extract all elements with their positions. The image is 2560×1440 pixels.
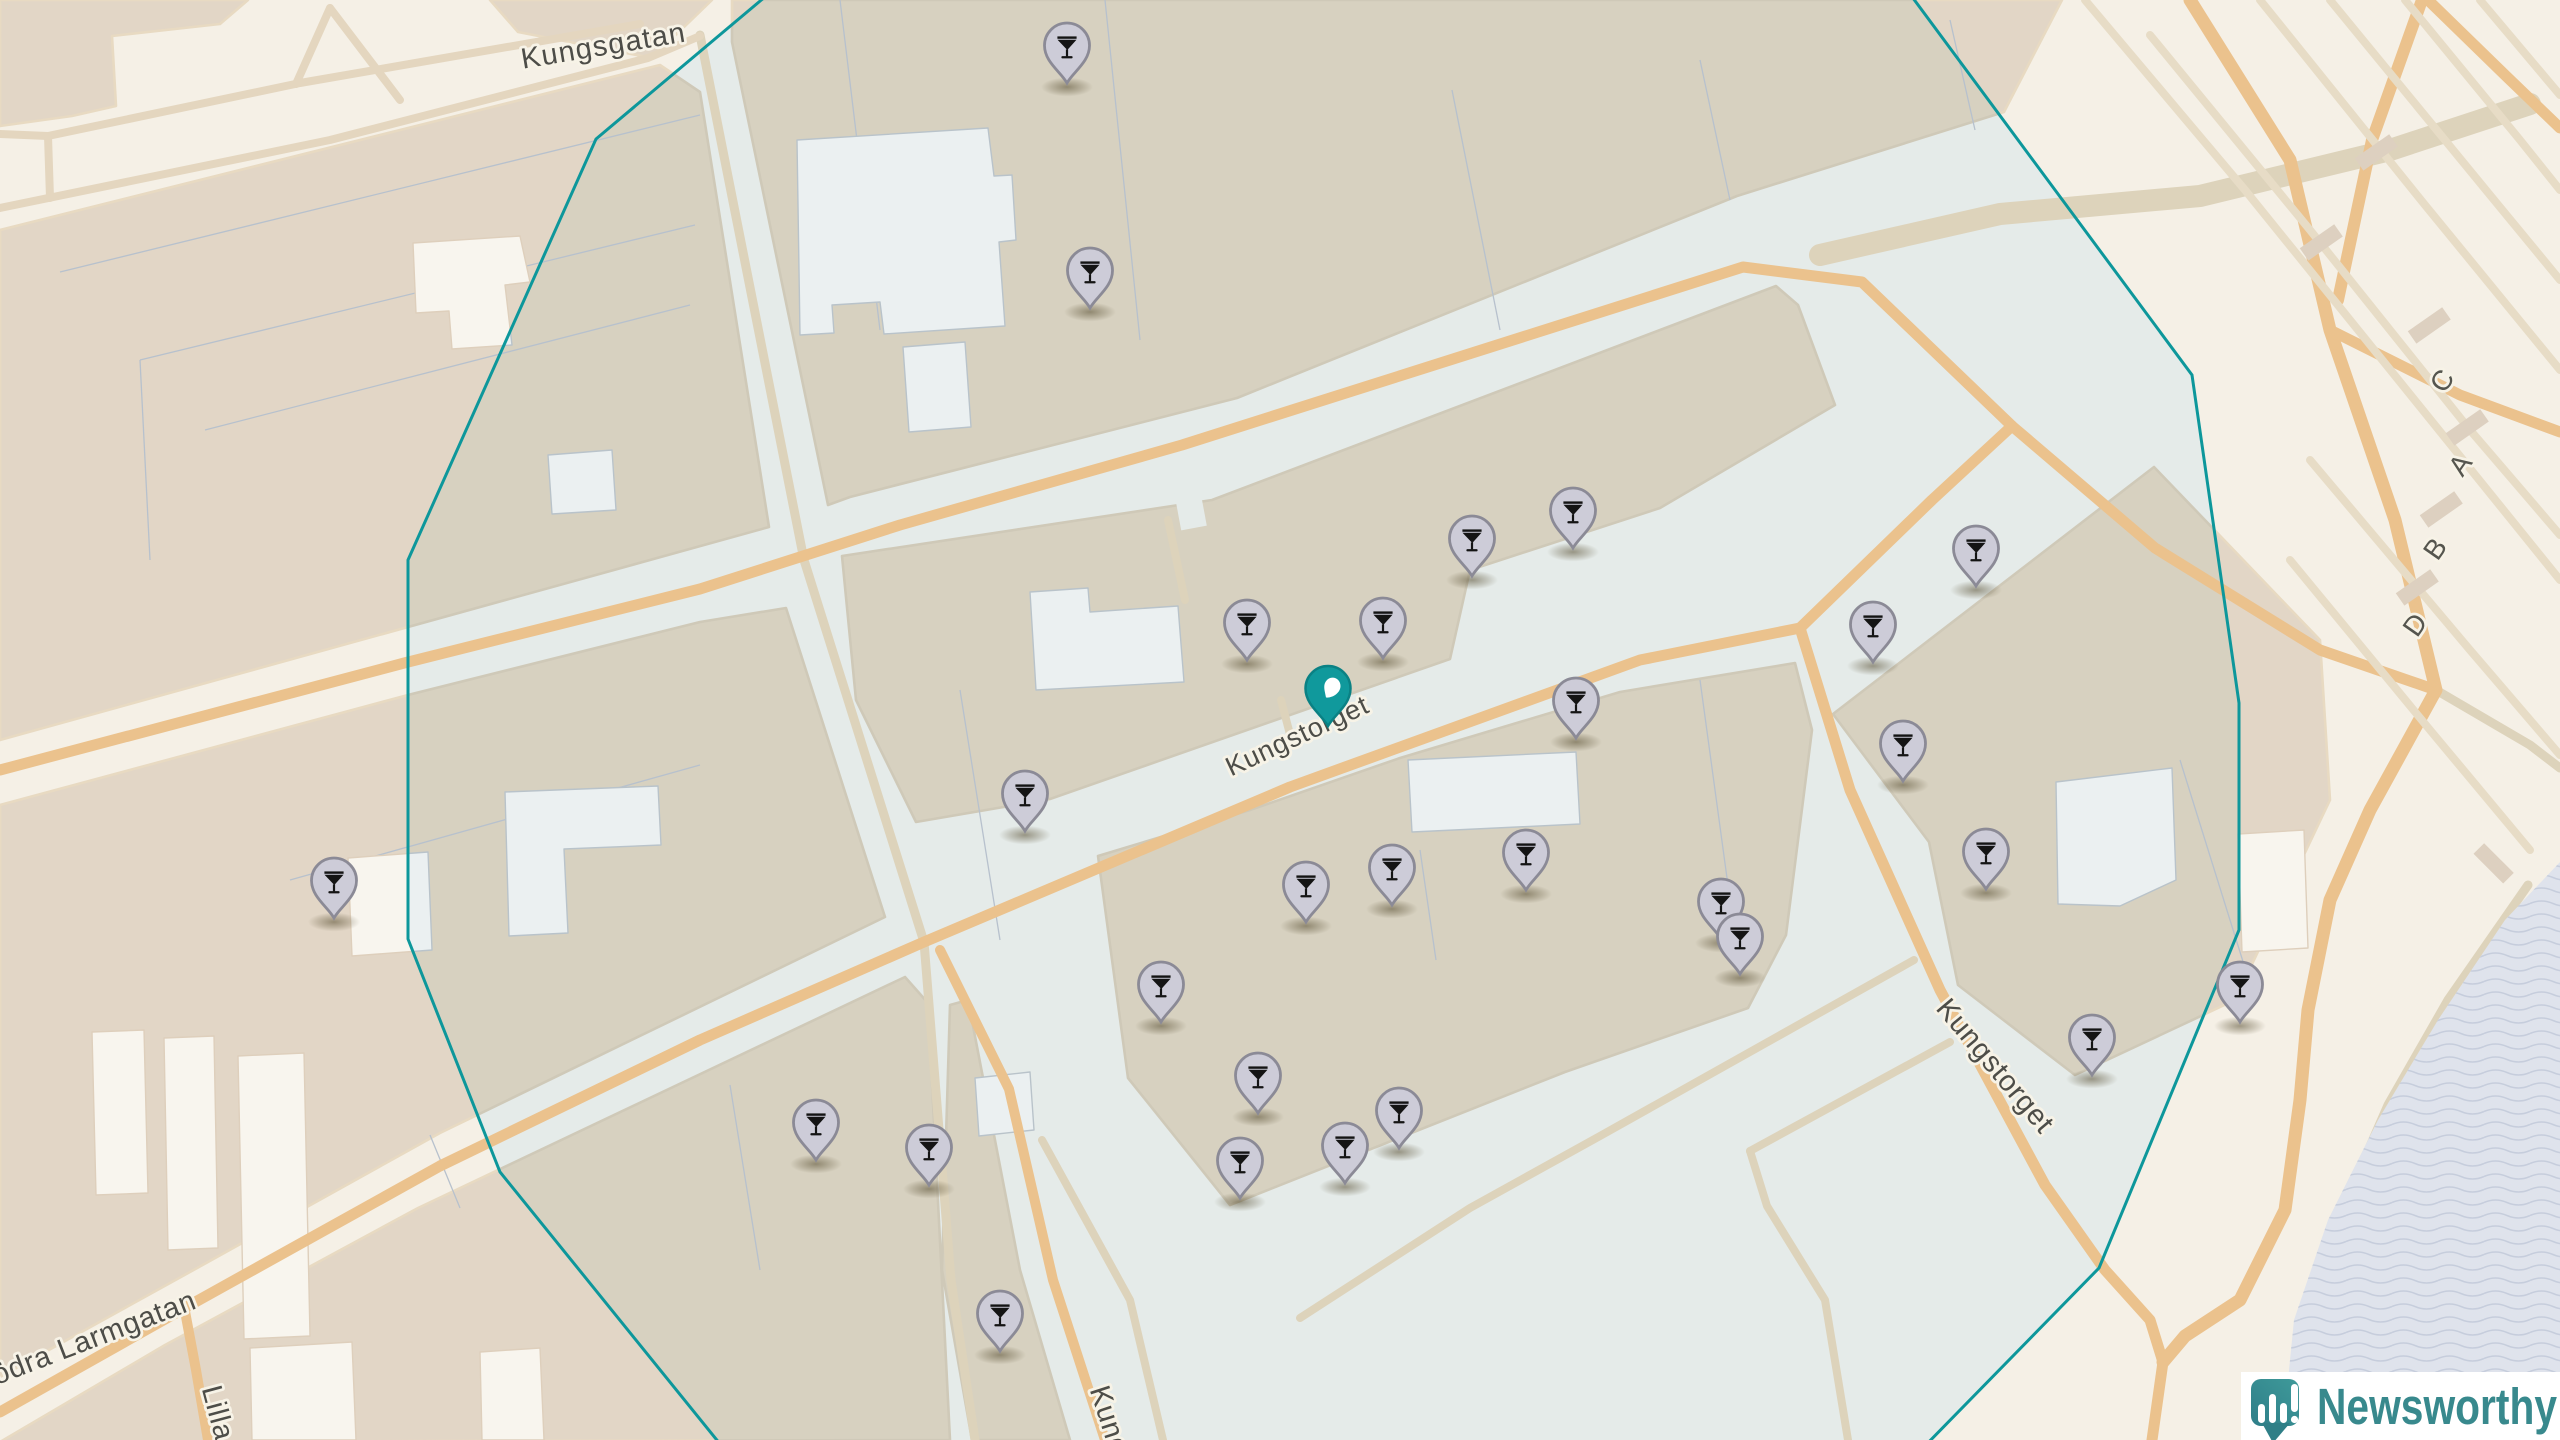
svg-text:Newsworthy: Newsworthy	[2317, 1378, 2558, 1435]
